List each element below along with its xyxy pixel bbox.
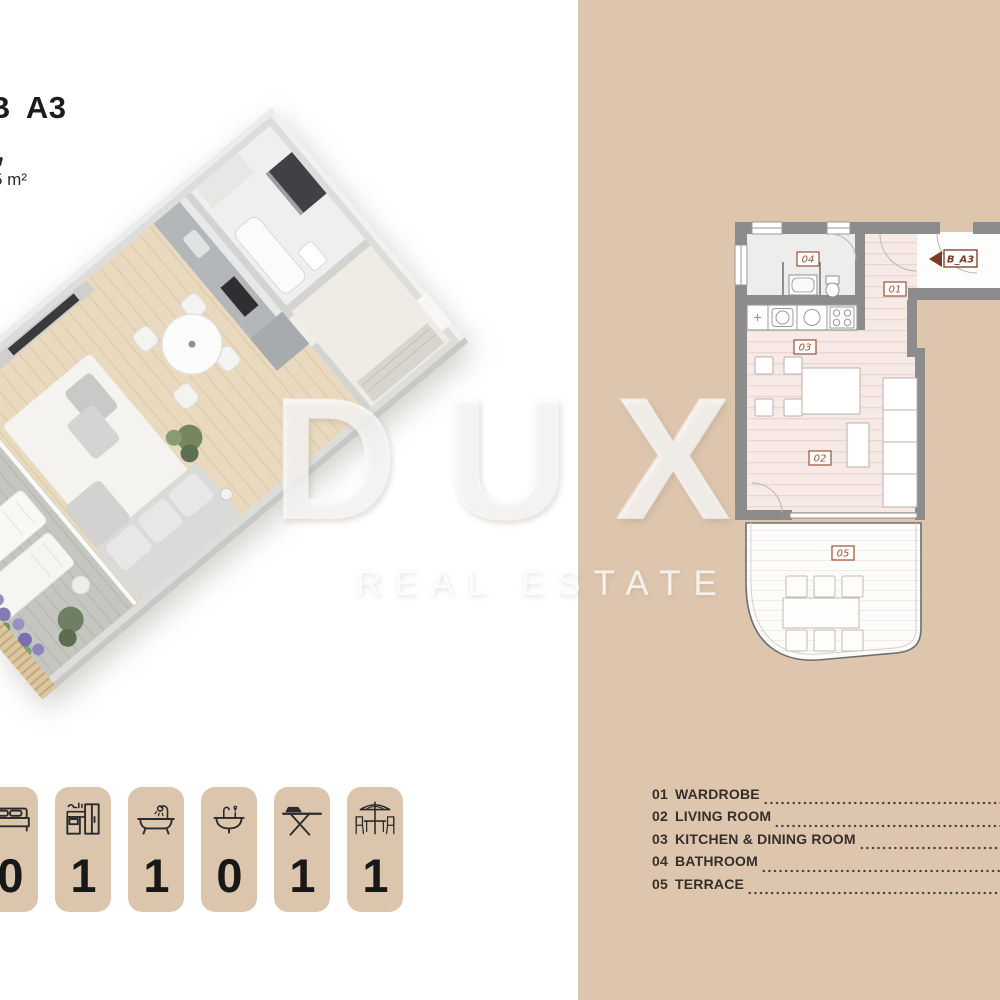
legend-item-kitchen-dining: 03 KITCHEN & DINING ROOM <box>652 831 1000 853</box>
bed-icon <box>0 796 33 842</box>
amenity-tile-bed: 0 <box>0 787 38 912</box>
patio-table-icon <box>352 796 398 842</box>
label-bathroom: 04 <box>802 255 815 266</box>
label-kitchen: 03 <box>799 343 812 354</box>
dotted-leader <box>763 801 1000 805</box>
amenity-count: 1 <box>143 852 168 899</box>
amenity-tile-ironing: 1 <box>274 787 330 912</box>
dotted-leader <box>747 891 1000 895</box>
amenity-count: 1 <box>289 852 314 899</box>
apartment-3d <box>0 108 468 700</box>
floor-plan-2d: 04 01 03 02 05 B_A3 <box>720 210 1000 680</box>
legend-label: BATHROOM <box>675 853 758 869</box>
page: BA3 5 m² <box>0 0 1000 1000</box>
legend-item-living-room: 02 LIVING ROOM <box>652 808 1000 830</box>
dotted-leader <box>761 869 1000 873</box>
amenity-tile-sink: 0 <box>201 787 257 912</box>
floor-plan-3d <box>0 90 560 750</box>
label-living: 02 <box>814 454 827 465</box>
terrace-glass-door <box>790 513 917 518</box>
amenity-tile-bathtub: 1 <box>128 787 184 912</box>
legend-number: 05 <box>652 876 668 892</box>
legend-item-bathroom: 04 BATHROOM <box>652 853 1000 875</box>
legend-item-wardrobe: 01 WARDROBE <box>652 786 1000 808</box>
legend-item-terrace: 05 TERRACE <box>652 876 1000 898</box>
bathtub-icon <box>133 796 179 842</box>
sink-icon <box>206 796 252 842</box>
label-wardrobe: 01 <box>889 285 902 296</box>
legend-number: 04 <box>652 853 668 869</box>
ironing-board-icon <box>279 796 325 842</box>
legend-number: 02 <box>652 808 668 824</box>
terrace-furniture <box>783 576 863 651</box>
unit-marker-label: B_A3 <box>947 255 974 266</box>
amenity-count: 0 <box>0 852 23 899</box>
legend-label: TERRACE <box>675 876 744 892</box>
legend-label: WARDROBE <box>675 786 760 802</box>
legend-label: KITCHEN & DINING ROOM <box>675 831 856 847</box>
amenity-count: 1 <box>362 852 387 899</box>
amenity-count: 1 <box>70 852 95 899</box>
amenity-count: 0 <box>216 852 241 899</box>
amenity-tile-patio: 1 <box>347 787 403 912</box>
kitchen-icon <box>60 796 106 842</box>
legend-number: 01 <box>652 786 668 802</box>
legend-label: LIVING ROOM <box>675 808 771 824</box>
dotted-leader <box>774 824 1000 828</box>
kitchen-counter <box>747 305 857 330</box>
legend-number: 03 <box>652 831 668 847</box>
dotted-leader <box>859 846 1000 850</box>
label-terrace: 05 <box>837 549 850 560</box>
room-legend: 01 WARDROBE 02 LIVING ROOM 03 KITCHEN & … <box>652 786 1000 898</box>
amenity-tiles: 0 1 1 <box>0 787 403 912</box>
amenity-tile-kitchen: 1 <box>55 787 111 912</box>
